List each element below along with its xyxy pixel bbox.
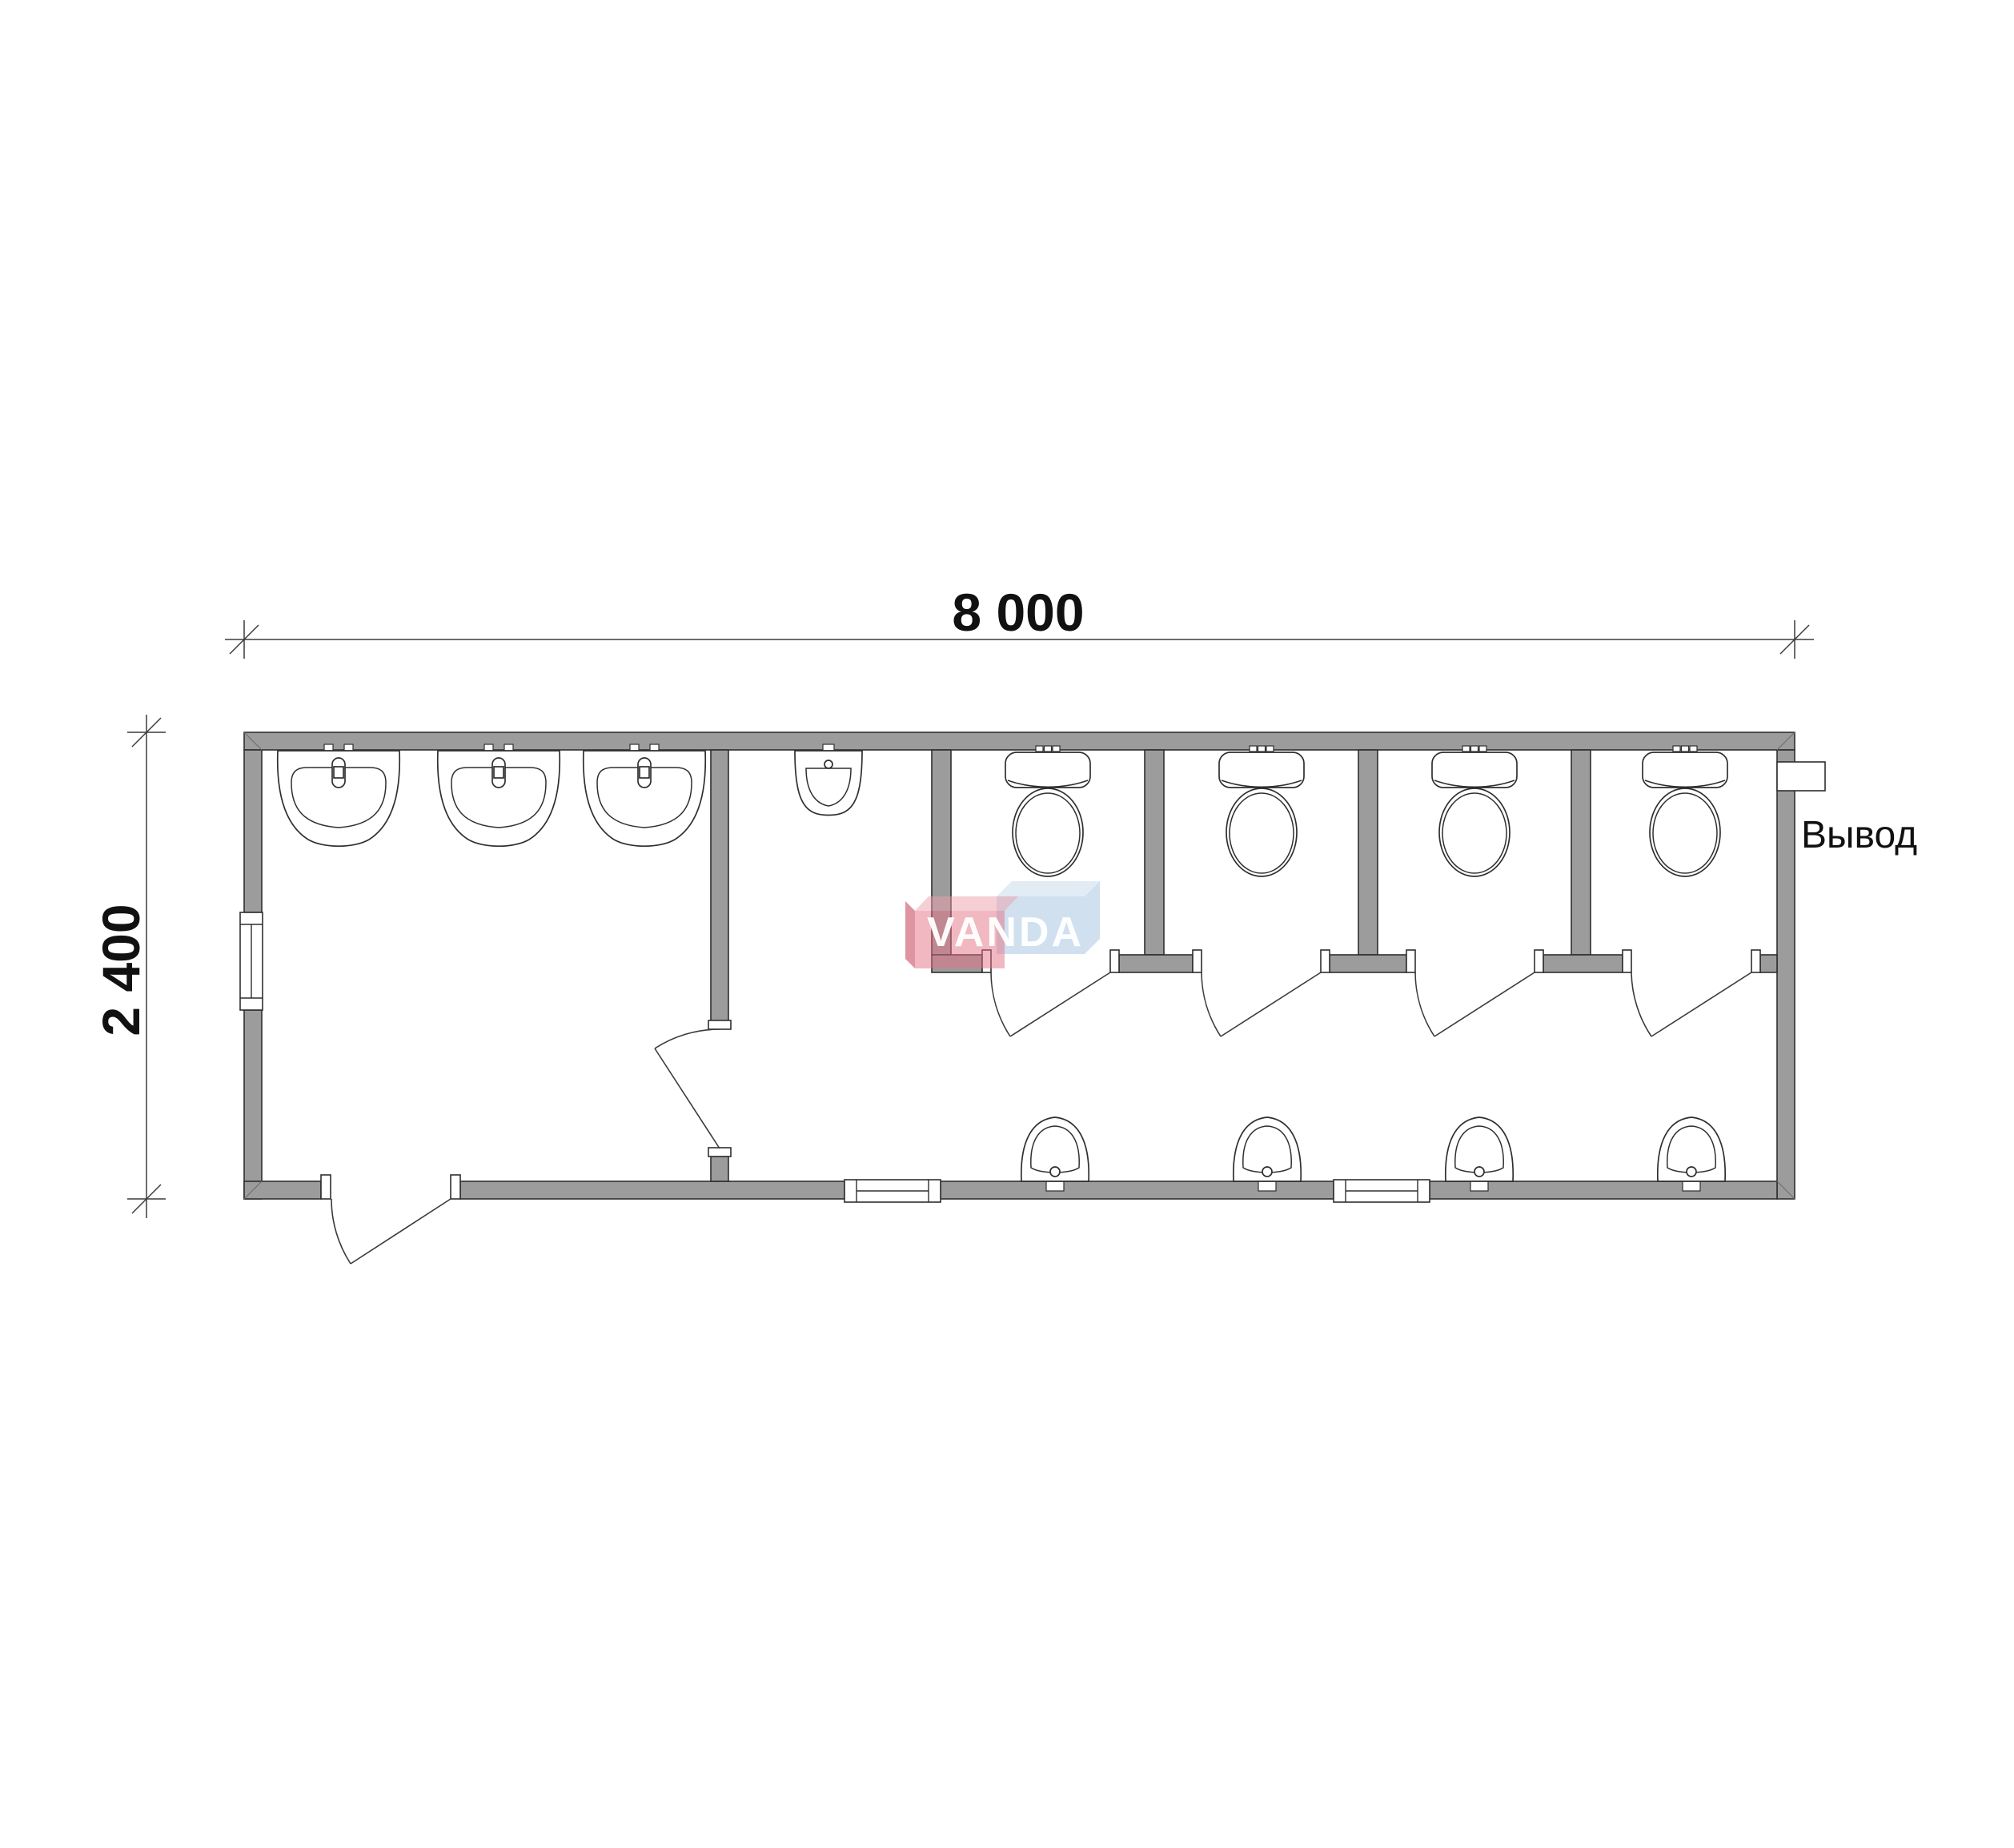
stall-front-wall-5 xyxy=(1760,955,1777,972)
window-left-wall xyxy=(240,912,263,1010)
stall1-jamb-right xyxy=(1110,950,1119,972)
wall-bottom-2 xyxy=(460,1181,845,1199)
stall-front-wall-3 xyxy=(1330,955,1406,972)
stall3-jamb-right xyxy=(1535,950,1543,972)
window-bottom-1 xyxy=(845,1180,941,1202)
partition-washroom-stub xyxy=(711,1157,728,1181)
stall-door-4 xyxy=(1631,972,1751,1036)
wall-top xyxy=(244,732,1795,750)
outlet-label: Вывод xyxy=(1801,814,1917,856)
washroom-door xyxy=(655,1029,720,1148)
stall4-jamb-right xyxy=(1751,950,1760,972)
stall-front-wall-4 xyxy=(1543,955,1623,972)
partition-stall-4 xyxy=(1571,750,1591,955)
outlet-box xyxy=(1777,762,1825,791)
stall2-jamb-right xyxy=(1321,950,1330,972)
toilet-1 xyxy=(1005,746,1090,876)
dimension-width-label: 8 000 xyxy=(952,583,1084,642)
washbasin-2 xyxy=(438,744,560,846)
entrance-door xyxy=(331,1199,451,1264)
partition-stall-3 xyxy=(1358,750,1378,955)
dimension-top: 8 000 xyxy=(225,583,1814,659)
wall-right xyxy=(1777,750,1795,1199)
stall-door-3 xyxy=(1415,972,1535,1036)
utility-outlet: Вывод xyxy=(1777,762,1917,856)
toilet-3 xyxy=(1432,746,1517,876)
watermark-text: VANDA xyxy=(927,909,1084,956)
hand-sink-2 xyxy=(1234,1117,1301,1191)
entrance-jamb-right xyxy=(451,1175,460,1199)
washbasin-3 xyxy=(584,744,705,846)
wall-bottom-1 xyxy=(244,1181,321,1199)
urinal xyxy=(795,744,862,816)
stall-door-1 xyxy=(991,972,1110,1036)
partition-stall-2 xyxy=(1145,750,1164,955)
floor-plan-canvas: Вывод 8 000 2 400 VANDA xyxy=(0,0,2014,1848)
washbasin-1 xyxy=(278,744,399,846)
washroom-door-jamb-bottom xyxy=(708,1148,731,1157)
toilet-2 xyxy=(1219,746,1304,876)
dimension-left: 2 400 xyxy=(91,715,166,1218)
washroom-door-jamb-top xyxy=(708,1020,731,1029)
toilet-4 xyxy=(1643,746,1727,876)
wall-left-lower xyxy=(244,1010,262,1199)
stall3-jamb-left xyxy=(1406,950,1415,972)
stall2-jamb-left xyxy=(1193,950,1202,972)
doors xyxy=(331,972,1751,1264)
hand-sink-3 xyxy=(1446,1117,1513,1191)
hand-sink-4 xyxy=(1658,1117,1725,1191)
hand-sink-1 xyxy=(1021,1117,1089,1191)
stall-door-2 xyxy=(1202,972,1321,1036)
wall-left-upper xyxy=(244,750,262,912)
entrance-jamb-left xyxy=(321,1175,331,1199)
stall4-jamb-left xyxy=(1623,950,1631,972)
partition-washroom xyxy=(711,750,728,1028)
window-bottom-2 xyxy=(1334,1180,1430,1202)
dimension-height-label: 2 400 xyxy=(91,904,150,1036)
stall-front-wall-2 xyxy=(1119,955,1193,972)
